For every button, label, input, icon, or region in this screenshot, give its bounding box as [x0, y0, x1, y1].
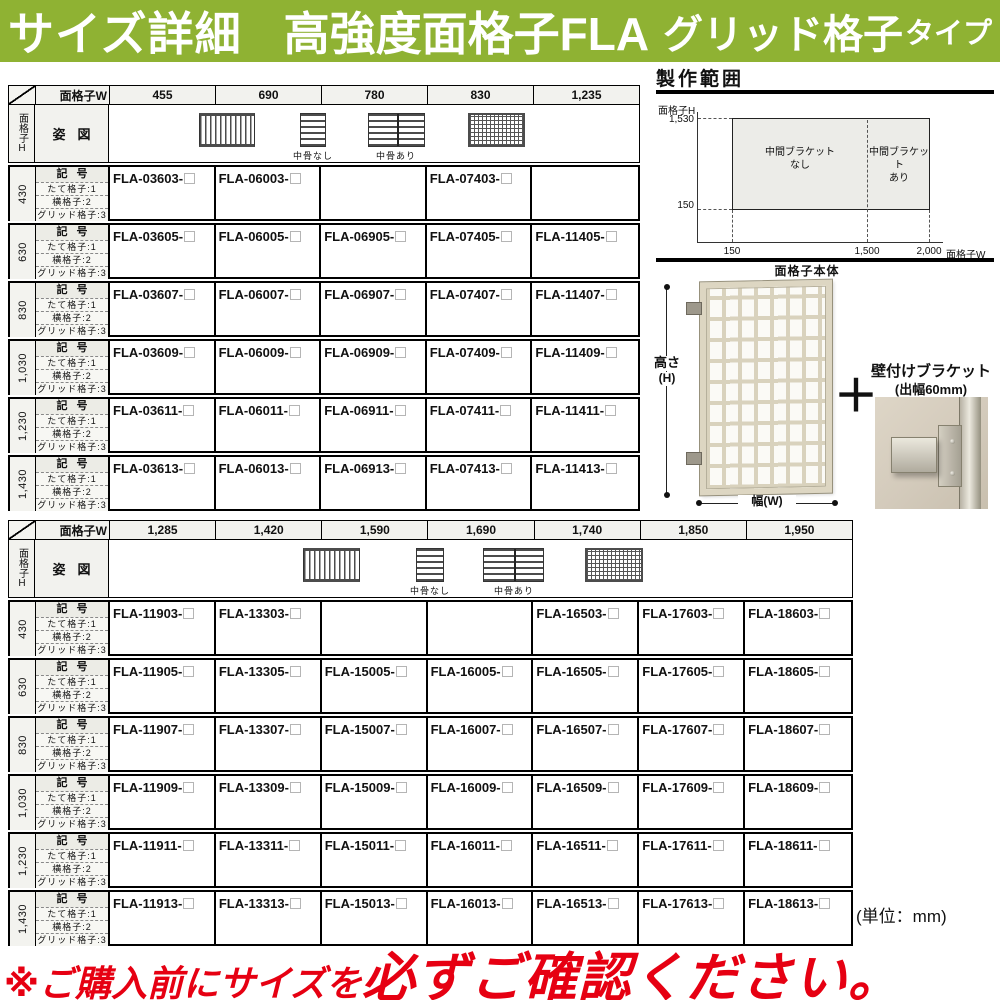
row-label-cell: 記号 たて格子:1 横格子:2 グリッド格子:3 — [36, 602, 110, 656]
lattice-type-line: たて格子:1 — [36, 472, 108, 485]
lattice-type-line: たて格子:1 — [36, 849, 108, 862]
dimension-endpoint-dot — [664, 492, 670, 498]
lattice-type-line: 横格子:2 — [36, 804, 108, 817]
code-header-label: 記号 — [36, 341, 108, 356]
product-code: FLA-11909- — [113, 780, 182, 795]
product-code: FLA-11407- — [535, 287, 604, 302]
code-cell — [428, 602, 534, 656]
zone-text: 中間ブラケット — [744, 146, 856, 159]
height-cell: 630 — [10, 660, 36, 714]
code-cell: FLA-18607- — [745, 718, 851, 772]
width-header: 1,950 — [746, 521, 852, 539]
appearance-row: 面格子H 姿図 中骨なし 中骨あり — [8, 540, 853, 598]
color-checkbox — [290, 289, 301, 300]
color-checkbox — [501, 840, 512, 851]
height-value: 1,030 — [17, 788, 29, 818]
row-label-cell: 記号 たて格子:1 横格子:2 グリッド格子:3 — [36, 776, 110, 830]
lattice-type-line: たて格子:1 — [36, 733, 108, 746]
chart-title: 製作範囲 — [656, 64, 744, 91]
code-header-label: 記号 — [36, 457, 108, 472]
lattice-type-line: グリッド格子:3 — [36, 382, 108, 395]
height-cell: 1,030 — [10, 776, 36, 830]
height-cell: 1,230 — [10, 399, 36, 453]
lattice-type-line: 横格子:2 — [36, 369, 108, 382]
y-tick-min: 150 — [656, 200, 694, 211]
purchase-warning: ※ご購入前にサイズを 必ずご確認ください。 — [4, 936, 902, 1000]
color-checkbox — [606, 463, 617, 474]
lattice-type-line: グリッド格子:3 — [36, 498, 108, 511]
lattice-type-line: たて格子:1 — [36, 240, 108, 253]
zone-text: なし — [744, 159, 856, 172]
lattice-type-line: グリッド格子:3 — [36, 266, 108, 279]
screw-icon — [950, 439, 955, 444]
color-checkbox — [501, 231, 512, 242]
product-code: FLA-17609- — [642, 780, 712, 795]
lattice-type-line: グリッド格子:3 — [36, 324, 108, 337]
horizontal-lattice-midrib-icon — [483, 548, 544, 582]
code-header-label: 記号 — [36, 167, 108, 182]
code-cell: FLA-11411- — [532, 399, 638, 453]
row-label-cell: 記号 たて格子:1 横格子:2 グリッド格子:3 — [36, 399, 110, 453]
code-header-label: 記号 — [36, 283, 108, 298]
product-code: FLA-06909- — [324, 345, 394, 360]
production-range-chart: 製作範囲 面格子H 1,530 150 中間ブラケット なし 中間ブラケット あ… — [656, 64, 994, 262]
color-checkbox — [290, 608, 301, 619]
product-code: FLA-07409- — [430, 345, 500, 360]
zone-text: あり — [869, 172, 929, 185]
lattice-type-line: 横格子:2 — [36, 427, 108, 440]
page-title-banner: サイズ詳細 高強度面格子FLA グリッド格子 タイプ — [0, 0, 1000, 62]
width-header: 1,690 — [427, 521, 533, 539]
color-checkbox — [606, 289, 617, 300]
code-cell: FLA-16009- — [428, 776, 534, 830]
horizontal-lattice-icon — [300, 113, 326, 147]
dash-guide — [929, 210, 930, 242]
color-checkbox — [713, 724, 724, 735]
color-checkbox — [713, 666, 724, 677]
color-checkbox — [290, 782, 301, 793]
color-checkbox — [819, 724, 830, 735]
color-checkbox — [396, 898, 407, 909]
color-checkbox — [608, 666, 619, 677]
code-cell: FLA-15009- — [322, 776, 428, 830]
code-cell: FLA-17605- — [639, 660, 745, 714]
height-axis-label: 面格子H — [9, 105, 35, 162]
table-row: 1,030 記号 たて格子:1 横格子:2 グリッド格子:3 FLA-03609… — [8, 339, 640, 395]
horizontal-lattice-icon — [416, 548, 444, 582]
code-cell: FLA-06011- — [216, 399, 322, 453]
product-code: FLA-03611- — [113, 403, 182, 418]
product-code: FLA-17613- — [642, 896, 712, 911]
table-row: 1,030 記号 たて格子:1 横格子:2 グリッド格子:3 FLA-11909… — [8, 774, 853, 830]
x-tick: 1,500 — [846, 246, 888, 257]
zone-no-intermediate-bracket: 中間ブラケット なし — [744, 146, 856, 172]
color-checkbox — [183, 608, 194, 619]
color-checkbox — [184, 173, 195, 184]
height-value: 830 — [17, 735, 29, 755]
height-cell: 430 — [10, 167, 36, 221]
dash-guide — [698, 209, 732, 210]
code-cell: FLA-03613- — [110, 457, 216, 511]
bracket-divider-line — [867, 120, 868, 242]
color-checkbox — [396, 782, 407, 793]
banner-title-product-name: 高強度面格子FLA — [284, 0, 649, 64]
code-cell: FLA-11413- — [532, 457, 638, 511]
product-code: FLA-11905- — [113, 664, 182, 679]
size-table-upper: 面格子W 455 690 780 830 1,235 面格子H 姿図 中骨なし … — [8, 85, 640, 511]
product-code: FLA-15005- — [325, 664, 395, 679]
width-axis-label: 面格子W — [35, 521, 109, 539]
code-cell: FLA-16007- — [428, 718, 534, 772]
code-cell: FLA-16507- — [533, 718, 639, 772]
height-cell: 830 — [10, 718, 36, 772]
code-cell — [532, 167, 638, 221]
height-axis-label: 面格子H — [9, 540, 35, 597]
lattice-type-line: たて格子:1 — [36, 675, 108, 688]
color-checkbox — [395, 405, 406, 416]
color-checkbox — [183, 666, 194, 677]
color-checkbox — [819, 782, 830, 793]
height-value: 1,430 — [17, 904, 29, 934]
color-checkbox — [608, 724, 619, 735]
lattice-type-line: たて格子:1 — [36, 414, 108, 427]
code-cell: FLA-13309- — [216, 776, 322, 830]
color-checkbox — [395, 347, 406, 358]
width-header: 1,420 — [215, 521, 321, 539]
color-checkbox — [501, 463, 512, 474]
wall-bracket-subtitle: (出幅60mm) — [864, 379, 998, 398]
color-checkbox — [819, 840, 830, 851]
product-code: FLA-07407- — [430, 287, 500, 302]
code-cell: FLA-06911- — [321, 399, 427, 453]
code-cell: FLA-18603- — [745, 602, 851, 656]
code-cell: FLA-11909- — [110, 776, 216, 830]
code-cell: FLA-13303- — [216, 602, 322, 656]
code-cell: FLA-16511- — [533, 834, 639, 888]
product-code: FLA-11903- — [113, 606, 182, 621]
width-header: 1,285 — [109, 521, 215, 539]
lattice-type-line: グリッド格子:3 — [36, 875, 108, 888]
code-cell: FLA-16503- — [533, 602, 639, 656]
color-checkbox — [290, 724, 301, 735]
lattice-type-line: たて格子:1 — [36, 617, 108, 630]
color-checkbox — [606, 231, 617, 242]
table-row: 830 記号 たて格子:1 横格子:2 グリッド格子:3 FLA-03607- … — [8, 281, 640, 337]
color-checkbox — [289, 840, 300, 851]
table-row: 430 記号 たて格子:1 横格子:2 グリッド格子:3 FLA-11903- … — [8, 600, 853, 656]
code-cell: FLA-18609- — [745, 776, 851, 830]
color-checkbox — [183, 782, 194, 793]
product-code: FLA-06905- — [324, 229, 394, 244]
width-dimension-label: 幅(W) — [738, 495, 796, 509]
color-checkbox — [607, 840, 618, 851]
row-label-cell: 記号 たて格子:1 横格子:2 グリッド格子:3 — [36, 341, 110, 395]
code-cell: FLA-11405- — [532, 225, 638, 279]
color-checkbox — [183, 840, 194, 851]
product-code: FLA-17607- — [642, 722, 712, 737]
lattice-type-line: たて格子:1 — [36, 791, 108, 804]
color-checkbox — [500, 405, 511, 416]
spec-sheet-page: サイズ詳細 高強度面格子FLA グリッド格子 タイプ 面格子W 455 690 … — [0, 0, 1000, 1000]
color-checkbox — [501, 289, 512, 300]
code-cell: FLA-06913- — [321, 457, 427, 511]
height-value: 430 — [17, 184, 29, 204]
color-checkbox — [290, 173, 301, 184]
height-value: 1,230 — [17, 846, 29, 876]
color-checkbox — [605, 405, 616, 416]
color-checkbox — [395, 231, 406, 242]
lattice-type-line: グリッド格子:3 — [36, 440, 108, 453]
code-cell: FLA-13307- — [216, 718, 322, 772]
code-cell: FLA-06005- — [216, 225, 322, 279]
product-code: FLA-16505- — [536, 664, 606, 679]
banner-title-size-details: サイズ詳細 — [8, 0, 242, 64]
product-code: FLA-13305- — [219, 664, 289, 679]
product-code: FLA-15009- — [325, 780, 395, 795]
code-cell — [321, 167, 427, 221]
product-code: FLA-13311- — [219, 838, 288, 853]
table-row: 1,230 記号 たて格子:1 横格子:2 グリッド格子:3 FLA-03611… — [8, 397, 640, 453]
product-code: FLA-07405- — [430, 229, 500, 244]
color-checkbox — [290, 347, 301, 358]
row-label-cell: 記号 たて格子:1 横格子:2 グリッド格子:3 — [36, 834, 110, 888]
row-label-cell: 記号 たて格子:1 横格子:2 グリッド格子:3 — [36, 457, 110, 511]
code-cell: FLA-17611- — [639, 834, 745, 888]
code-cell: FLA-06909- — [321, 341, 427, 395]
product-code: FLA-06911- — [324, 403, 393, 418]
grid-lattice-icon — [468, 113, 525, 147]
dimension-endpoint-dot — [696, 500, 702, 506]
product-code: FLA-18605- — [748, 664, 818, 679]
grille-panel-drawing — [700, 280, 832, 496]
with-midrib-caption: 中骨あり — [363, 149, 429, 162]
width-header: 1,740 — [534, 521, 640, 539]
color-checkbox — [608, 898, 619, 909]
size-table-lower: 面格子W 1,285 1,420 1,590 1,690 1,740 1,850… — [8, 520, 853, 946]
color-checkbox — [289, 405, 300, 416]
lattice-type-line: 横格子:2 — [36, 862, 108, 875]
appearance-label: 姿図 — [35, 105, 109, 162]
product-code: FLA-16009- — [431, 780, 501, 795]
color-checkbox — [819, 608, 830, 619]
product-code: FLA-18611- — [748, 838, 817, 853]
unit-note: (単位：mm) — [856, 902, 947, 927]
lattice-type-line: 横格子:2 — [36, 630, 108, 643]
color-checkbox — [184, 289, 195, 300]
product-code: FLA-03603- — [113, 171, 183, 186]
product-code: FLA-16013- — [431, 896, 501, 911]
height-dimension-sublabel: (H) — [648, 372, 686, 386]
code-cell: FLA-15005- — [322, 660, 428, 714]
code-cell: FLA-07403- — [427, 167, 533, 221]
code-cell: FLA-06003- — [216, 167, 322, 221]
code-cell: FLA-07411- — [427, 399, 533, 453]
product-code: FLA-17605- — [642, 664, 712, 679]
code-cell: FLA-06905- — [321, 225, 427, 279]
product-code: FLA-06005- — [219, 229, 289, 244]
product-code: FLA-13313- — [219, 896, 289, 911]
height-dimension-line — [666, 287, 667, 495]
product-code: FLA-11411- — [535, 403, 604, 418]
lattice-type-line: たて格子:1 — [36, 356, 108, 369]
color-checkbox — [608, 782, 619, 793]
dash-guide — [698, 118, 732, 119]
color-checkbox — [290, 463, 301, 474]
product-code: FLA-06007- — [219, 287, 289, 302]
warning-prefix: ※ご購入前にサイズを — [4, 955, 362, 1000]
code-cell: FLA-18611- — [745, 834, 851, 888]
color-checkbox — [502, 898, 513, 909]
width-header: 1,235 — [533, 86, 639, 104]
wall-bracket-title: 壁付けブラケット — [864, 360, 998, 381]
with-midrib-caption: 中骨あり — [481, 584, 547, 597]
x-tick: 2,000 — [908, 246, 950, 257]
product-code: FLA-03605- — [113, 229, 183, 244]
code-header-label: 記号 — [36, 892, 108, 907]
table-row: 1,430 記号 たて格子:1 横格子:2 グリッド格子:3 FLA-03613… — [8, 455, 640, 511]
mount-bracket-tab — [686, 452, 702, 465]
color-checkbox — [501, 173, 512, 184]
product-code: FLA-15007- — [325, 722, 395, 737]
x-axis-line — [697, 242, 943, 243]
height-value: 1,230 — [17, 411, 29, 441]
grid-lattice-icon — [585, 548, 643, 582]
x-tick: 150 — [716, 246, 748, 257]
code-cell: FLA-11407- — [532, 283, 638, 337]
table-row: 1,230 記号 たて格子:1 横格子:2 グリッド格子:3 FLA-11911… — [8, 832, 853, 888]
lattice-illustrations: 中骨なし 中骨あり — [109, 540, 852, 597]
bracket-arm — [938, 425, 962, 487]
color-checkbox — [713, 782, 724, 793]
code-cell: FLA-11409- — [532, 341, 638, 395]
row-label-cell: 記号 たて格子:1 横格子:2 グリッド格子:3 — [36, 718, 110, 772]
height-cell: 830 — [10, 283, 36, 337]
product-code: FLA-11911- — [113, 838, 182, 853]
grille-body-label: 面格子本体 — [757, 262, 857, 279]
height-cell: 1,430 — [10, 457, 36, 511]
lattice-type-line: 横格子:2 — [36, 688, 108, 701]
color-checkbox — [395, 840, 406, 851]
code-cell: FLA-07407- — [427, 283, 533, 337]
horizontal-lattice-midrib-icon — [368, 113, 425, 147]
product-code: FLA-15013- — [325, 896, 395, 911]
product-code: FLA-18603- — [748, 606, 818, 621]
width-header: 455 — [109, 86, 215, 104]
code-cell: FLA-16505- — [533, 660, 639, 714]
code-cell: FLA-16509- — [533, 776, 639, 830]
color-checkbox — [395, 289, 406, 300]
mount-bracket-tab — [686, 302, 702, 315]
height-cell: 630 — [10, 225, 36, 279]
code-cell: FLA-06009- — [216, 341, 322, 395]
color-checkbox — [183, 724, 194, 735]
code-cell: FLA-06013- — [216, 457, 322, 511]
product-code: FLA-11405- — [535, 229, 604, 244]
code-cell: FLA-16005- — [428, 660, 534, 714]
code-cell: FLA-15011- — [322, 834, 428, 888]
product-code: FLA-11907- — [113, 722, 182, 737]
lattice-type-line: グリッド格子:3 — [36, 759, 108, 772]
appearance-row: 面格子H 姿図 中骨なし 中骨あり — [8, 105, 640, 163]
code-cell: FLA-11907- — [110, 718, 216, 772]
no-midrib-caption: 中骨なし — [267, 149, 359, 162]
lattice-type-line: 横格子:2 — [36, 746, 108, 759]
product-code: FLA-16503- — [536, 606, 606, 621]
height-cell: 1,230 — [10, 834, 36, 888]
warning-main: 必ずご確認ください。 — [362, 936, 902, 1000]
product-code: FLA-07411- — [430, 403, 499, 418]
grille-frame-edge — [959, 397, 981, 509]
code-header-label: 記号 — [36, 776, 108, 791]
dimension-endpoint-dot — [664, 284, 670, 290]
code-header-label: 記号 — [36, 834, 108, 849]
code-cell: FLA-13305- — [216, 660, 322, 714]
code-header-label: 記号 — [36, 718, 108, 733]
product-code: FLA-13303- — [219, 606, 289, 621]
product-code: FLA-03613- — [113, 461, 183, 476]
code-cell: FLA-06007- — [216, 283, 322, 337]
height-value: 630 — [17, 242, 29, 262]
table-corner-diagonal — [9, 521, 35, 539]
lattice-type-line: グリッド格子:3 — [36, 817, 108, 830]
color-checkbox — [819, 666, 830, 677]
color-checkbox — [290, 666, 301, 677]
code-cell: FLA-16011- — [428, 834, 534, 888]
lattice-type-line: 横格子:2 — [36, 485, 108, 498]
code-cell: FLA-11905- — [110, 660, 216, 714]
table-row: 630 記号 たて格子:1 横格子:2 グリッド格子:3 FLA-03605- … — [8, 223, 640, 279]
vertical-lattice-icon — [303, 548, 360, 582]
code-cell: FLA-17607- — [639, 718, 745, 772]
lattice-type-line: 横格子:2 — [36, 253, 108, 266]
width-header: 690 — [215, 86, 321, 104]
color-checkbox — [290, 231, 301, 242]
code-header-label: 記号 — [36, 225, 108, 240]
product-code: FLA-17611- — [642, 838, 711, 853]
appearance-label: 姿図 — [35, 540, 109, 597]
color-checkbox — [501, 347, 512, 358]
code-cell: FLA-07413- — [427, 457, 533, 511]
product-code: FLA-11409- — [535, 345, 604, 360]
vertical-lattice-icon — [199, 113, 255, 147]
color-checkbox — [396, 666, 407, 677]
code-cell: FLA-06907- — [321, 283, 427, 337]
color-checkbox — [713, 608, 724, 619]
banner-title-grid-type: グリッド格子 — [663, 2, 903, 60]
lattice-type-line: グリッド格子:3 — [36, 643, 108, 656]
product-code: FLA-03609- — [113, 345, 183, 360]
lattice-type-line: グリッド格子:3 — [36, 208, 108, 221]
color-checkbox — [819, 898, 830, 909]
y-axis-line — [697, 112, 698, 242]
zone-with-intermediate-bracket: 中間ブラケット あり — [869, 146, 929, 185]
code-cell: FLA-13311- — [216, 834, 322, 888]
dash-guide — [732, 210, 733, 242]
product-code: FLA-06913- — [324, 461, 394, 476]
row-label-cell: 記号 たて格子:1 横格子:2 グリッド格子:3 — [36, 225, 110, 279]
color-checkbox — [713, 898, 724, 909]
product-code: FLA-06907- — [324, 287, 394, 302]
height-value: 1,030 — [17, 353, 29, 383]
screw-icon — [950, 471, 955, 476]
row-label-cell: 記号 たて格子:1 横格子:2 グリッド格子:3 — [36, 660, 110, 714]
color-checkbox — [396, 724, 407, 735]
table-header-row: 面格子W 455 690 780 830 1,235 — [8, 85, 640, 105]
color-checkbox — [502, 724, 513, 735]
color-checkbox — [606, 347, 617, 358]
code-cell: FLA-11903- — [110, 602, 216, 656]
product-code: FLA-15011- — [325, 838, 394, 853]
